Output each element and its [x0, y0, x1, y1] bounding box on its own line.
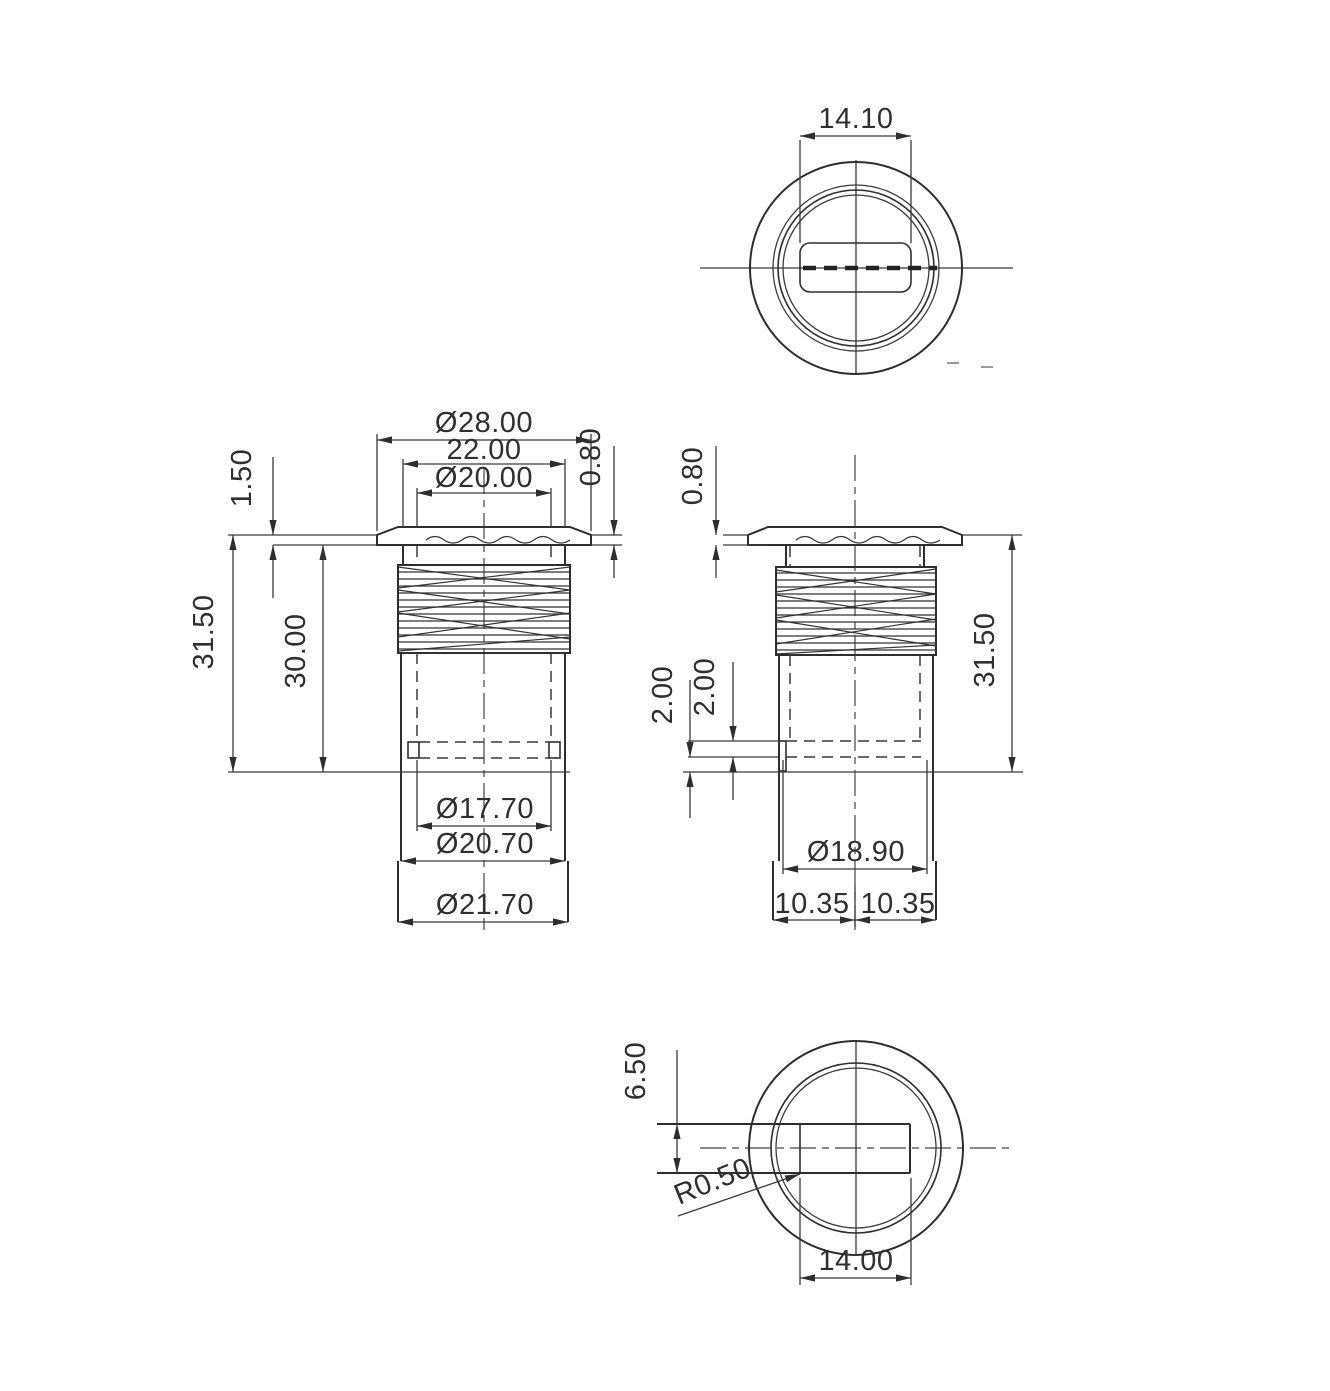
dim-front-below-flange-label: 30.00 [280, 613, 312, 688]
dim-top-slot-width-label: 14.10 [818, 103, 893, 135]
dim-side-flange-rim-label: 0.80 [677, 447, 709, 505]
dim-front-flange-rim-label: 0.80 [575, 428, 607, 486]
dim-front-body-dia-label: Ø20.70 [436, 828, 534, 860]
dim-bottom-slot-height-label: 6.50 [620, 1042, 652, 1100]
dim-bottom-slot-width-label: 14.00 [818, 1245, 893, 1277]
dim-side-overall-height-label: 31.50 [969, 612, 1001, 687]
side-view: 0.80 2.00 2.00 31.50 Ø18.90 10.35 [647, 446, 1023, 930]
bottom-view: 6.50 R0.50 14.00 [620, 1041, 1010, 1285]
dim-front-inner-bore-label: Ø17.70 [436, 793, 534, 825]
drawing-page: 14.10 [0, 0, 1330, 1386]
bottom-view-dimensions: 6.50 R0.50 14.00 [620, 1042, 911, 1285]
dim-side-half-width-right-label: 10.35 [860, 888, 935, 920]
drawing-canvas: 14.10 [0, 0, 1330, 1386]
dim-front-base-dia-label: Ø21.70 [436, 889, 534, 921]
side-slot-hidden [786, 741, 921, 757]
front-dimensions: Ø28.00 22.00 Ø20.00 1.50 0.80 [188, 407, 622, 922]
dim-side-bore-dia-label: Ø18.90 [807, 836, 905, 868]
front-view: Ø28.00 22.00 Ø20.00 1.50 0.80 [188, 407, 622, 930]
flange-knurl-squiggle [796, 537, 940, 544]
flange-knurl-squiggle [426, 537, 570, 544]
dim-side-half-width-left-label: 10.35 [774, 888, 849, 920]
dim-front-top-bore-label: Ø20.00 [435, 462, 533, 494]
dim-side-slot-height-label: 2.00 [689, 658, 721, 716]
top-view: 14.10 [700, 103, 1013, 374]
dim-bottom-corner-radius-label: R0.50 [670, 1152, 756, 1212]
side-dimensions: 0.80 2.00 2.00 31.50 Ø18.90 10.35 [647, 446, 1023, 927]
dim-front-flange-thickness-label: 1.50 [226, 449, 258, 507]
top-view-artifacts [947, 363, 993, 367]
front-body [398, 653, 568, 922]
dim-front-overall-height-label: 31.50 [188, 594, 220, 669]
side-thread-section [776, 567, 936, 655]
dim-side-slot-clearance-label: 2.00 [647, 666, 679, 724]
